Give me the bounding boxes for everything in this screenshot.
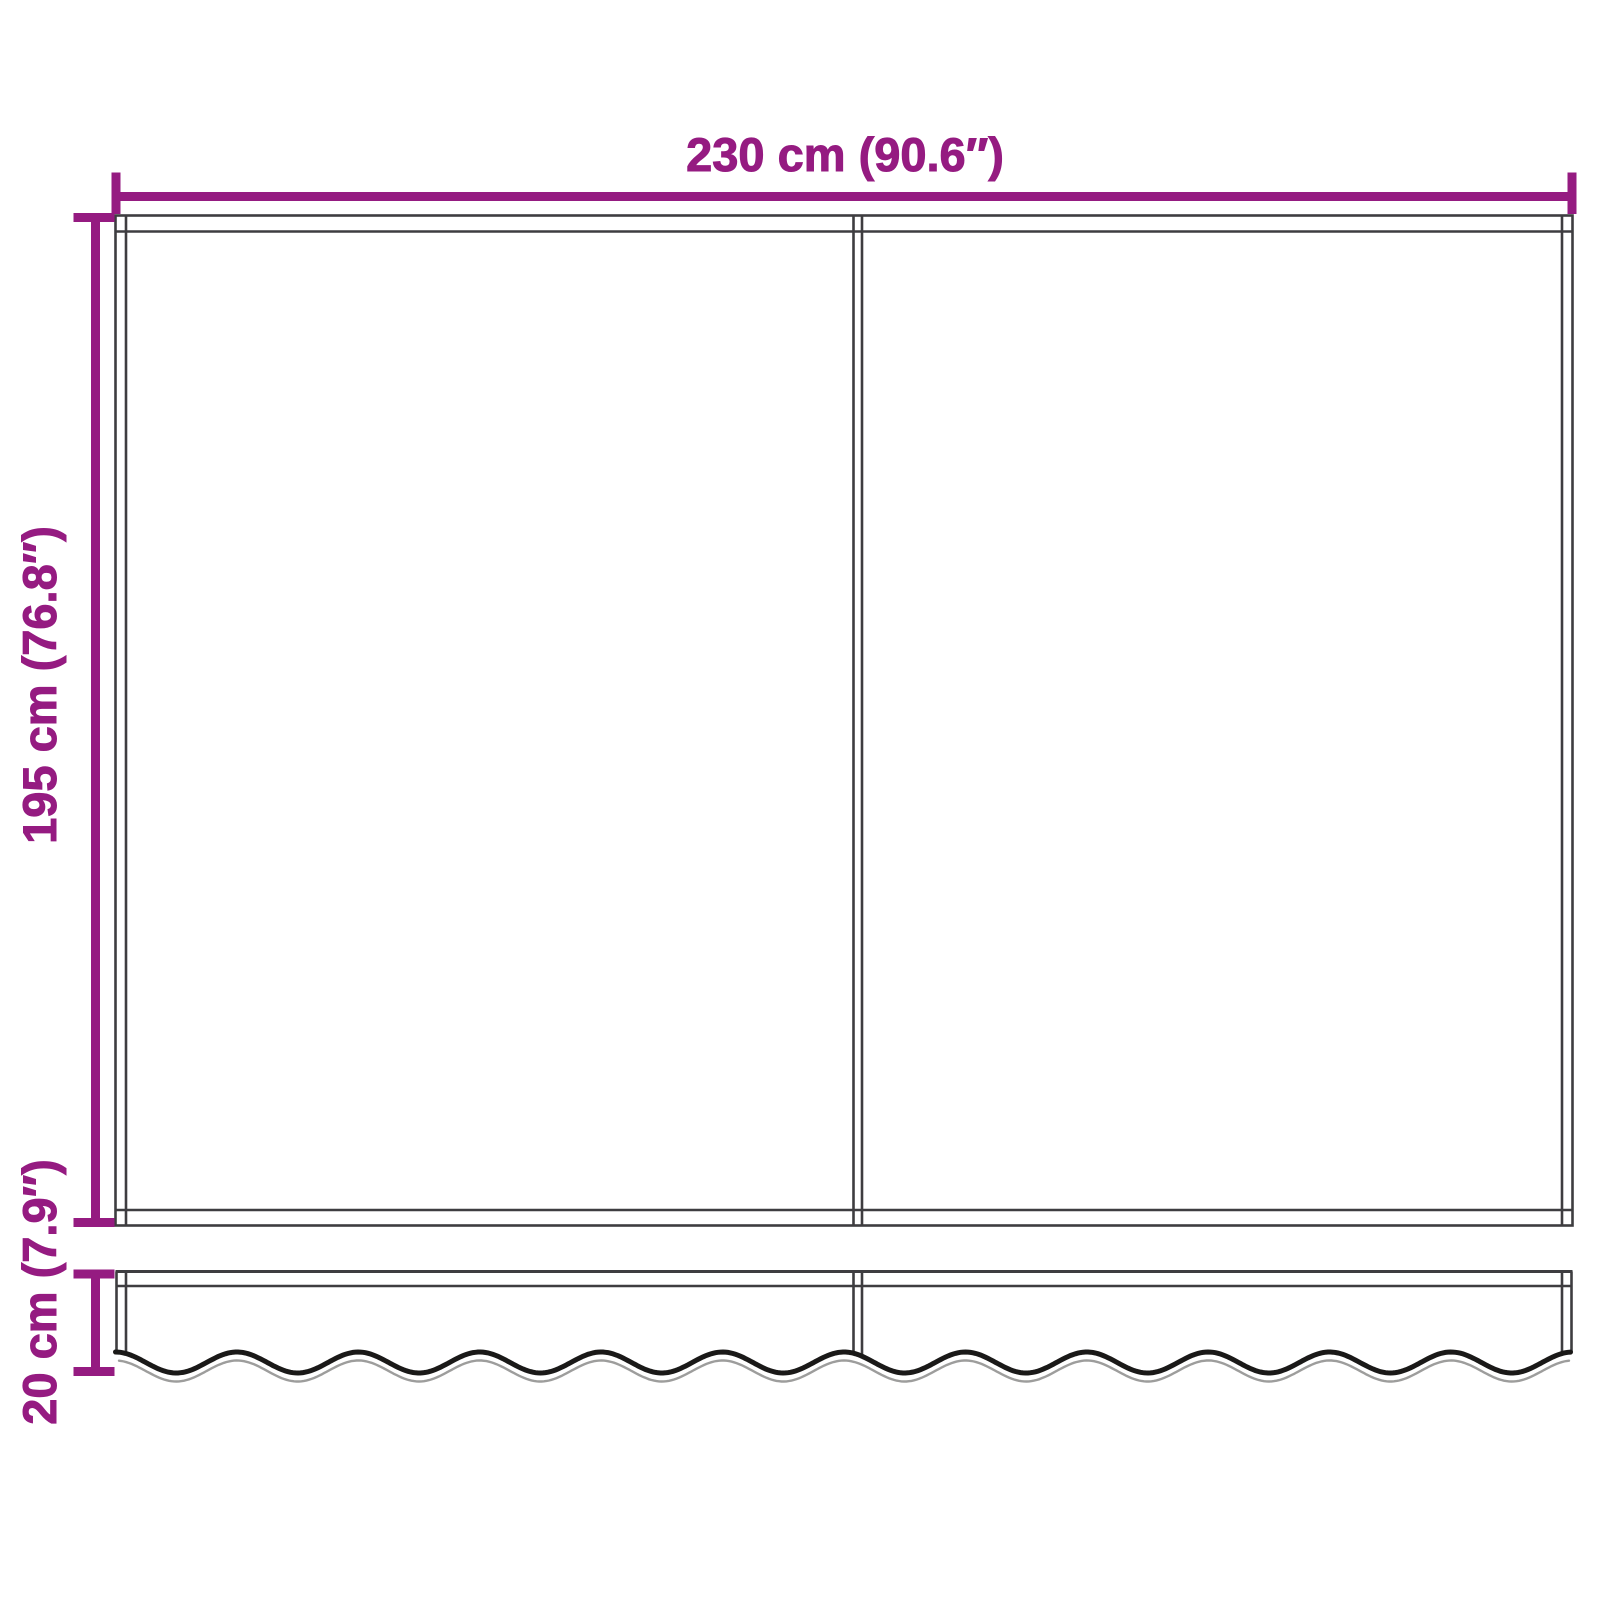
dimension-diagram: 230 cm (90.6″) 195 cm (76.8″) 20 cm (7.9… [0,0,1600,1600]
diagram-canvas: 230 cm (90.6″) 195 cm (76.8″) 20 cm (7.9… [0,0,1600,1600]
valance-scallop-shadow-line [119,1361,1569,1382]
awning-fabric-front-view [116,216,1573,1226]
width-dimension: 230 cm (90.6″) [116,128,1573,214]
height-dimension: 195 cm (76.8″) [13,214,115,1226]
valance-front-view [116,1272,1573,1382]
valance-height-dimension-label: 20 cm (7.9″) [13,1159,66,1424]
valance-scallop-edge [116,1352,1571,1373]
fabric-outer-edge [116,216,1573,1226]
width-dimension-label: 230 cm (90.6″) [686,128,1004,181]
height-dimension-label: 195 cm (76.8″) [13,526,66,844]
